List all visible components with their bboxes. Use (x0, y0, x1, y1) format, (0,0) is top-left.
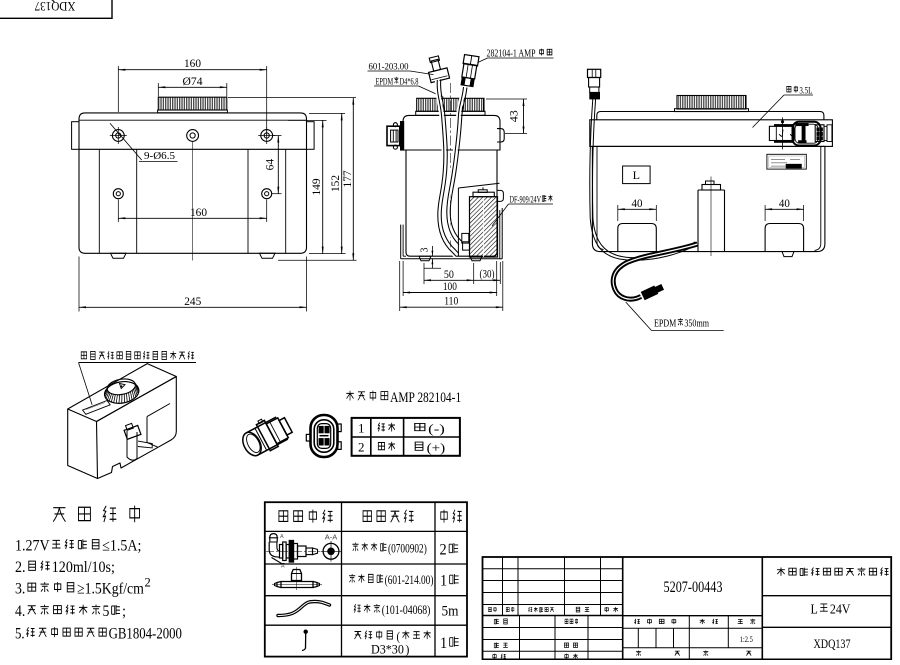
svg-text:3.: 3. (15, 581, 25, 598)
svg-text:350mm: 350mm (684, 319, 709, 330)
svg-text:5207-00443: 5207-00443 (664, 579, 723, 596)
svg-text:64: 64 (265, 159, 277, 171)
svg-text:24V: 24V (830, 601, 851, 617)
svg-text:≥1.5Kgf/cm: ≥1.5Kgf/cm (77, 581, 144, 598)
svg-text:AMP 282104-1: AMP 282104-1 (390, 389, 461, 406)
svg-text:A-A: A-A (325, 533, 338, 542)
svg-text:(101-04068): (101-04068) (382, 604, 431, 617)
svg-text:160: 160 (184, 58, 201, 70)
svg-text:XDQ137: XDQ137 (814, 636, 851, 651)
svg-text:40: 40 (779, 198, 790, 210)
svg-text:3: 3 (420, 248, 431, 253)
svg-text:2: 2 (145, 576, 151, 590)
svg-text:1:2.5: 1:2.5 (740, 634, 753, 644)
svg-text:A: A (280, 534, 284, 540)
svg-text:177: 177 (342, 170, 354, 187)
svg-text:43: 43 (509, 110, 521, 122)
svg-text:(+): (+) (427, 441, 446, 456)
svg-text:2: 2 (440, 542, 447, 559)
svg-text:(30): (30) (480, 269, 495, 281)
svg-text:40: 40 (632, 198, 643, 210)
svg-text:D4*6.8: D4*6.8 (400, 76, 419, 87)
svg-text:GB1804-2000: GB1804-2000 (109, 625, 182, 642)
svg-text:1: 1 (440, 573, 447, 590)
svg-text:149: 149 (311, 178, 323, 195)
svg-text:120ml/10s;: 120ml/10s; (52, 559, 115, 576)
svg-text:100: 100 (443, 281, 457, 293)
svg-text:160: 160 (190, 207, 207, 219)
svg-text:2.: 2. (15, 559, 26, 576)
svg-text:(0700902): (0700902) (388, 542, 427, 556)
svg-text:110: 110 (444, 296, 458, 308)
svg-text:D3*30: D3*30 (371, 642, 404, 656)
svg-text:245: 245 (184, 296, 201, 308)
svg-text:L: L (811, 601, 818, 617)
svg-text:A: A (281, 564, 285, 570)
svg-text:Ø74: Ø74 (183, 76, 203, 88)
svg-text:5.: 5. (15, 625, 25, 642)
svg-text:50: 50 (444, 269, 454, 281)
svg-text:≤1.5A;: ≤1.5A; (102, 538, 141, 555)
svg-text:EPDM: EPDM (376, 76, 394, 87)
svg-text:1.27V: 1.27V (15, 538, 50, 555)
svg-text:;: ; (122, 603, 126, 620)
svg-text:9-Ø6.5: 9-Ø6.5 (144, 150, 175, 162)
svg-text:3.5L: 3.5L (799, 84, 812, 96)
svg-text:L: L (633, 168, 640, 182)
svg-text:1: 1 (358, 420, 365, 435)
svg-text:2: 2 (358, 439, 365, 454)
svg-text:(-): (-) (428, 422, 445, 436)
svg-text:EPDM: EPDM (654, 319, 677, 330)
svg-text:5: 5 (102, 603, 109, 620)
svg-text:282104-1 AMP: 282104-1 AMP (487, 48, 536, 59)
svg-text:(601-214.00): (601-214.00) (385, 574, 434, 588)
svg-text:152: 152 (330, 175, 342, 192)
svg-text:DF-909/24V: DF-909/24V (509, 194, 541, 205)
svg-text:XDQ137: XDQ137 (35, 0, 76, 13)
svg-text:): ) (405, 642, 409, 656)
svg-text:1: 1 (440, 636, 447, 653)
svg-text:4.: 4. (15, 603, 25, 620)
svg-text:5m: 5m (442, 604, 459, 620)
